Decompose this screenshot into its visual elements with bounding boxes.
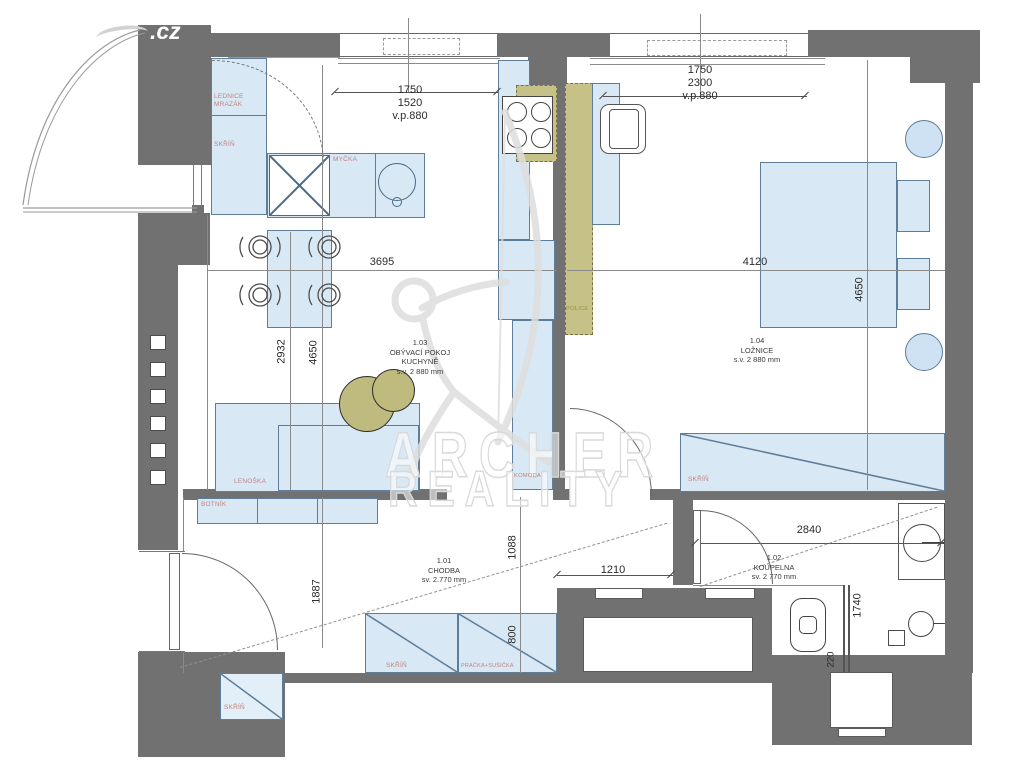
room-edge bbox=[207, 215, 208, 490]
shoe-rack-label: BOTNÍK bbox=[201, 501, 226, 509]
hall-door-dim: 1210 bbox=[583, 564, 643, 577]
bed bbox=[760, 162, 897, 328]
living-room-label: 1.03 OBÝVACÍ POKOJ KUCHYNĚ s.v. 2 880 mm bbox=[370, 338, 470, 376]
kitchen-window-radiator bbox=[383, 38, 460, 55]
shaft bbox=[830, 672, 893, 728]
entrance-door-leaf bbox=[169, 553, 180, 650]
stair-landing bbox=[583, 617, 753, 672]
room-edge bbox=[693, 585, 845, 586]
hall-wardrobe-label: SKŘÍŇ bbox=[386, 662, 407, 670]
wall-segment bbox=[945, 83, 973, 673]
door-threshold bbox=[705, 588, 755, 599]
side-table-round bbox=[905, 333, 943, 371]
bedroom-width-dim: 4120 bbox=[725, 256, 785, 269]
bedroom-window-dims: 1750 2300 v.p.880 bbox=[660, 64, 740, 103]
shower-head bbox=[908, 611, 934, 637]
wall-niche bbox=[150, 443, 166, 458]
wall-niche bbox=[150, 416, 166, 431]
niche-wardrobe bbox=[220, 673, 283, 720]
toilet-tank bbox=[799, 616, 817, 634]
bathroom-door-leaf bbox=[693, 510, 701, 584]
window-sill-line bbox=[590, 58, 825, 59]
bedroom-depth-dim: 4650 bbox=[854, 270, 867, 310]
kitchen-window-dims: 1750 1520 v.p.880 bbox=[370, 84, 450, 123]
wardrobe-diagonal bbox=[221, 674, 282, 719]
living-d1-dim: 2932 bbox=[276, 332, 289, 372]
dimension-line bbox=[867, 60, 868, 490]
daybed-label: LENOŠKA bbox=[234, 478, 266, 486]
bedroom-wardrobe-label: SKŘÍŇ bbox=[688, 476, 709, 484]
shaft-sill bbox=[838, 728, 886, 737]
wardrobe-diagonal bbox=[681, 434, 944, 491]
wall-niche bbox=[150, 362, 166, 377]
shoe-rack-divider bbox=[257, 498, 258, 524]
dimension-line bbox=[520, 497, 521, 673]
bath-width-dim: 2840 bbox=[779, 524, 839, 537]
wall-segment bbox=[910, 30, 980, 83]
dishwasher-label: MYČKA bbox=[333, 156, 357, 164]
fridge-label: LEDNICE MRAZÁK bbox=[214, 93, 244, 109]
window-sill-line bbox=[338, 63, 500, 64]
wall-segment bbox=[673, 500, 693, 585]
wardrobe-diagonal bbox=[366, 614, 457, 672]
dresser-label: KOMODA bbox=[514, 472, 541, 480]
bedroom-label: 1.04 LOŽNICE s.v. 2 880 mm bbox=[707, 336, 807, 365]
wall-segment bbox=[283, 673, 560, 683]
washer-dryer-label: PRAČKA+SUŠIČKA bbox=[461, 662, 514, 670]
wall-niche bbox=[150, 335, 166, 350]
wall-niche bbox=[150, 470, 166, 485]
window-sill-line bbox=[338, 58, 500, 59]
shower-drain bbox=[888, 630, 905, 646]
living-width-dim: 3695 bbox=[352, 256, 412, 269]
watermark-cz: .cz bbox=[150, 18, 181, 45]
shower-arm bbox=[933, 623, 945, 624]
shelves-label: POLICE bbox=[566, 305, 588, 313]
hall-depth-dim: 1887 bbox=[311, 572, 324, 612]
living-d2-dim: 4650 bbox=[308, 333, 321, 373]
hall-wardrobe bbox=[365, 613, 458, 673]
wall-segment bbox=[138, 265, 178, 550]
hall-label: 1.01 CHODBA sv. 2.770 mm bbox=[394, 556, 494, 585]
shoe-rack-divider bbox=[317, 498, 318, 524]
hall-d2-dim: 800 bbox=[507, 615, 520, 655]
niche-wardrobe-label: SKŘÍŇ bbox=[224, 704, 245, 712]
wall-segment bbox=[497, 33, 610, 57]
wardrobe-kitchen-label: SKŘÍŇ bbox=[214, 141, 235, 149]
bedroom-window-radiator bbox=[647, 40, 787, 56]
floor-plan: LEDNICE MRAZÁK SKŘÍŇ MYČKA KOMODA LENOŠK… bbox=[0, 0, 1019, 768]
bedroom-wardrobe bbox=[680, 433, 945, 492]
entrance-door-arc bbox=[182, 553, 278, 650]
shower-partition bbox=[843, 585, 845, 672]
hall-d1-dim: 1088 bbox=[507, 528, 520, 568]
nightstand bbox=[897, 258, 930, 310]
wall-niche bbox=[150, 389, 166, 404]
nightstand bbox=[897, 180, 930, 232]
door-threshold bbox=[595, 588, 643, 599]
shower-partition bbox=[848, 585, 850, 672]
side-table-round bbox=[905, 120, 943, 158]
bath-depth-dim: 1740 bbox=[852, 586, 865, 626]
watermark-word-reality: REALITY bbox=[388, 460, 632, 518]
bathroom-label: 1.02 KOUPELNA sv. 2 770 mm bbox=[724, 553, 824, 582]
bath-wall-dim: 220 bbox=[825, 640, 838, 680]
